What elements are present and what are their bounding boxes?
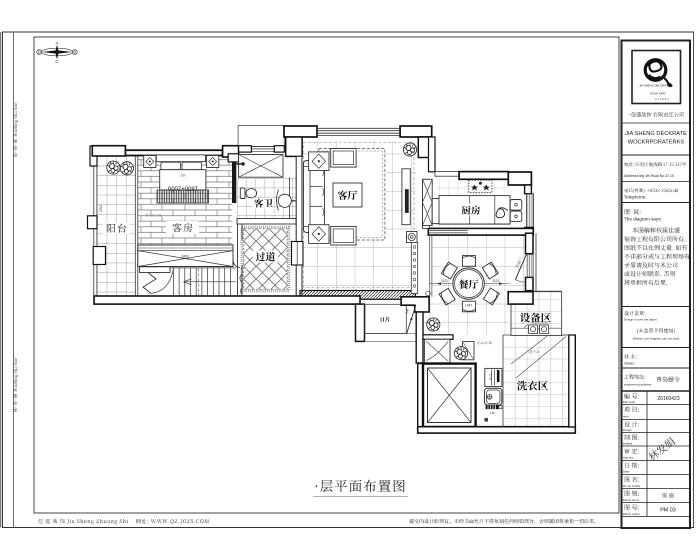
svg-text:20160423: 20160423 — [657, 396, 679, 402]
svg-text:The diagram says:: The diagram says: — [624, 217, 662, 222]
svg-text:t.m: t.m — [181, 174, 186, 178]
svg-text:Part code:: Part code: — [623, 400, 636, 404]
svg-text:Design in over the depei:: Design in over the depei: — [624, 318, 657, 322]
svg-text:C-3: C-3 — [489, 374, 493, 380]
svg-text:KXXN OPE: KXXN OPE — [650, 92, 665, 96]
svg-text:WOCKRPORATERKS: WOCKRPORATERKS — [628, 140, 685, 146]
svg-text:Drafted:: Drafted: — [623, 442, 633, 446]
svg-text:Date:: Date: — [623, 470, 630, 474]
svg-text:t.m: t.m — [490, 411, 495, 415]
svg-text:B: B — [73, 50, 76, 55]
svg-text:JIA SHENG DECKRATE: JIA SHENG DECKRATE — [625, 131, 687, 137]
svg-text:1500: 1500 — [99, 204, 103, 212]
svg-text:1121: 1121 — [441, 279, 448, 283]
svg-text:JIA SHENG DECORATION: JIA SHENG DECORATION — [639, 84, 673, 88]
svg-text:PM 03: PM 03 — [660, 508, 676, 514]
svg-text:1121: 1121 — [493, 279, 500, 283]
svg-text:App der:: App der: — [623, 456, 634, 460]
svg-text:Address:King 4th Road No.37-15: Address:King 4th Road No.37-15 — [624, 174, 674, 178]
svg-text:Dhnrw mvdnr:: Dhnrw mvdnr: — [623, 512, 641, 516]
svg-text:Dhnrw du mt:: Dhnrw du mt: — [623, 498, 640, 502]
svg-text:A: A — [56, 41, 59, 46]
svg-text:2400: 2400 — [181, 255, 188, 259]
svg-text:D: D — [38, 50, 41, 55]
svg-text:x x x 2 1 x: x x x 2 1 x — [655, 97, 669, 101]
svg-text:Owner:: Owner: — [624, 362, 635, 366]
svg-text:Item:: Item: — [623, 415, 629, 419]
svg-text:C: C — [55, 59, 58, 64]
svg-text:Ds ins Ya Bns:: Ds ins Ya Bns: — [623, 484, 641, 488]
svg-text:Telephone:: Telephone: — [624, 195, 646, 200]
svg-text:Without over diagram can not u: Without over diagram can not used — [633, 337, 680, 341]
svg-text:Design:: Design: — [623, 428, 633, 432]
svg-text:1047: 1047 — [465, 304, 472, 308]
svg-text:engineering address:: engineering address: — [624, 383, 652, 387]
